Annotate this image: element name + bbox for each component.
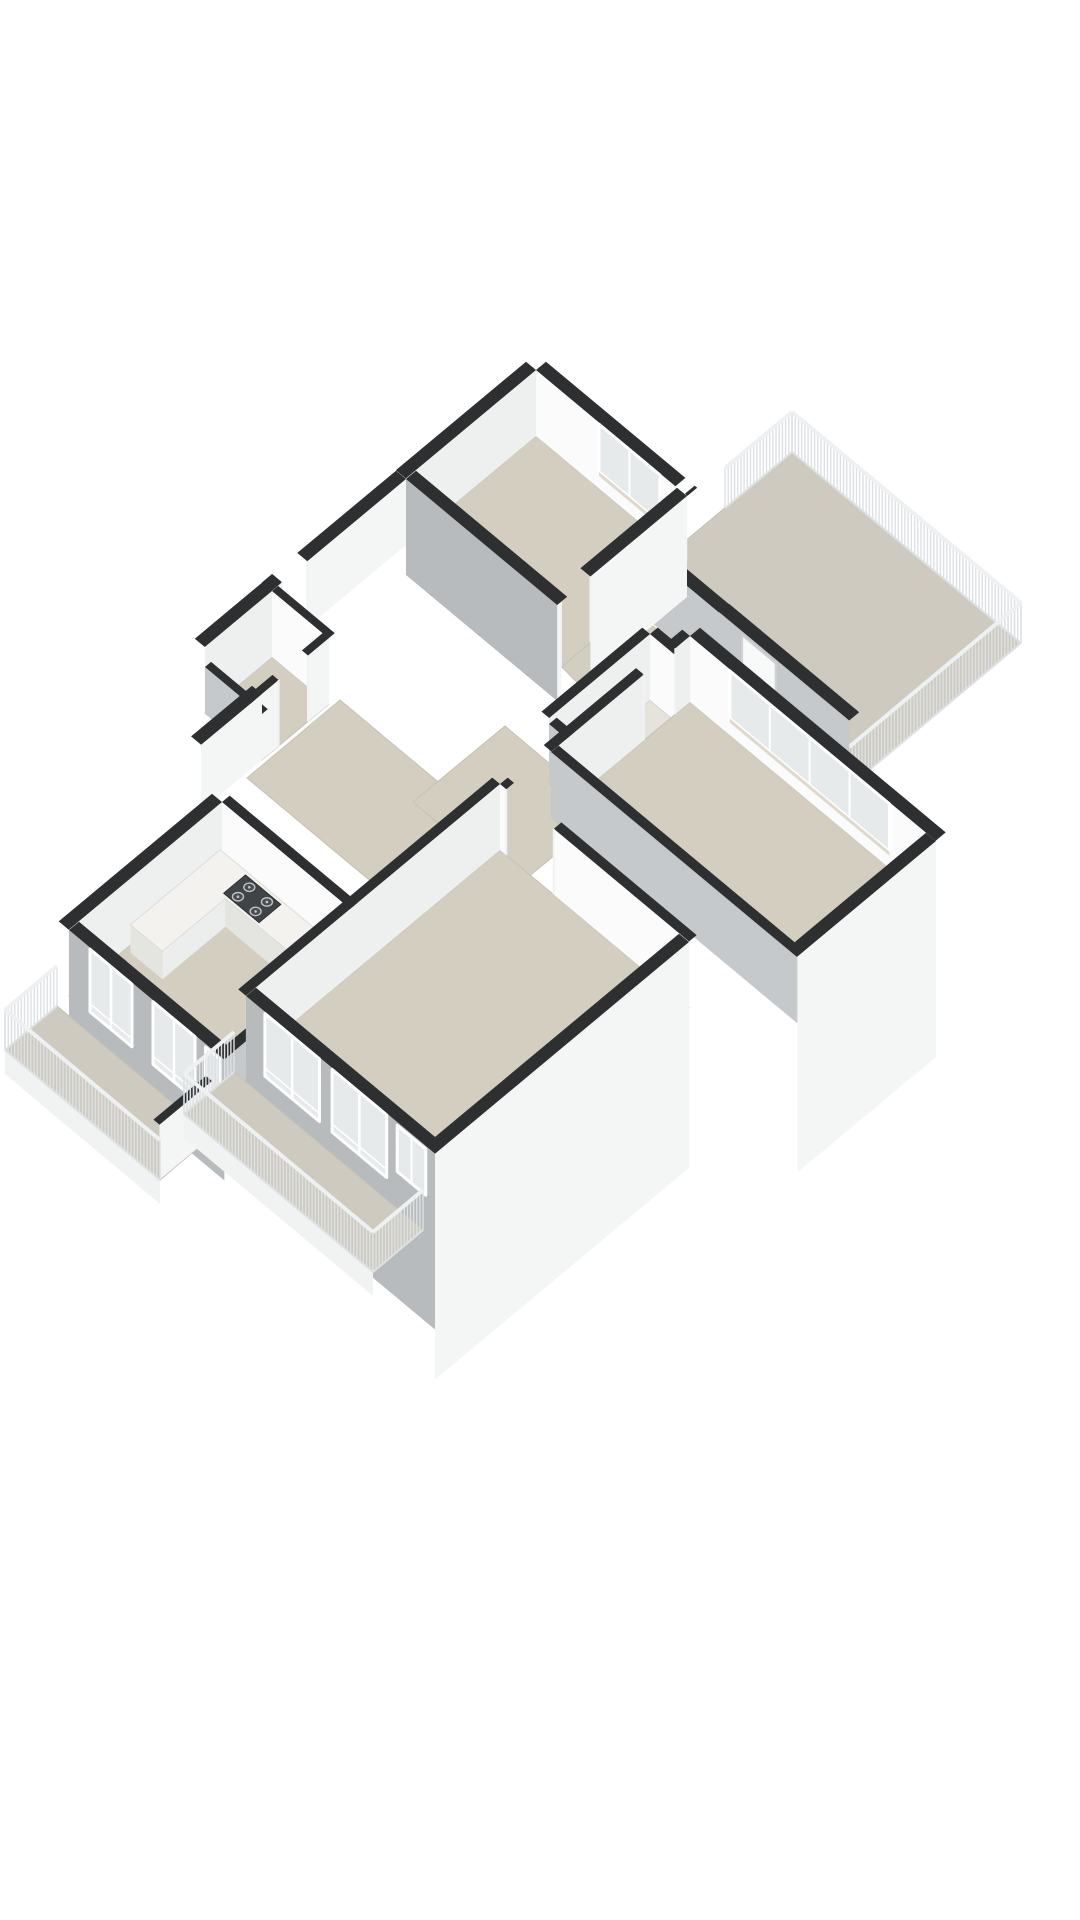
floor-plan-3d-render	[0, 0, 1080, 1920]
floor-plan-page	[0, 0, 1080, 1920]
